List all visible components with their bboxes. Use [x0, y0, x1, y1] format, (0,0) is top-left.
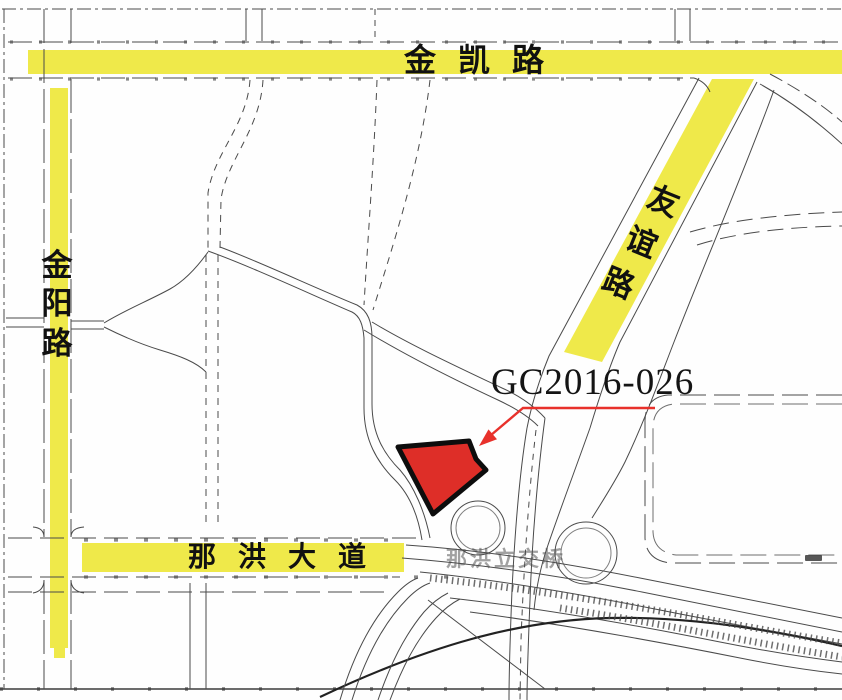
jinyang-road-band: [50, 88, 68, 648]
nahong-avenue-label: 那洪大道: [188, 543, 388, 571]
jinyang-road-label-char: 金: [40, 250, 74, 281]
road-line: [675, 9, 690, 41]
road-line: [378, 593, 448, 700]
road-line: [190, 583, 206, 689]
interchange-loop-east: [555, 522, 617, 584]
interchange-loop-west: [451, 501, 505, 555]
road-line: [206, 255, 218, 528]
road-line: [208, 80, 250, 251]
road-line: [428, 600, 545, 689]
road-line: [320, 618, 842, 697]
jinyang-road-label-char: 路: [40, 328, 74, 359]
road-line: [534, 428, 590, 610]
parcel-code-label: GC2016-026: [491, 364, 694, 401]
jinkai-road-label: 金凯路: [404, 44, 566, 76]
road-line: [104, 252, 208, 323]
road-network: [0, 0, 842, 700]
jinyang-road-band-tip: [54, 646, 65, 658]
city-block-outline: [653, 404, 842, 555]
youyi-road-band: [564, 79, 754, 362]
road-line: [402, 558, 842, 632]
road-line: [697, 226, 842, 245]
highlighted-roads: [28, 50, 842, 658]
parcel-annotation: [398, 408, 655, 514]
road-line: [690, 212, 842, 232]
city-block-outline: [645, 395, 842, 563]
road-line: [220, 247, 430, 538]
road-line: [104, 327, 206, 372]
road-line: [390, 599, 460, 700]
road-line: [220, 80, 263, 248]
road-line: [406, 545, 842, 618]
road-line: [456, 506, 500, 550]
jinyang-road-label-char: 阳: [40, 288, 74, 319]
leader-line: [484, 408, 655, 441]
road-line: [760, 84, 842, 144]
land-parcel-location-map: 那洪立交桥: [0, 0, 842, 700]
road-line: [208, 251, 422, 540]
road-line: [246, 9, 262, 41]
road-line: [364, 80, 377, 305]
tiny-map-annotation: [805, 555, 822, 561]
road-line: [373, 80, 430, 310]
road-line: [770, 74, 842, 122]
